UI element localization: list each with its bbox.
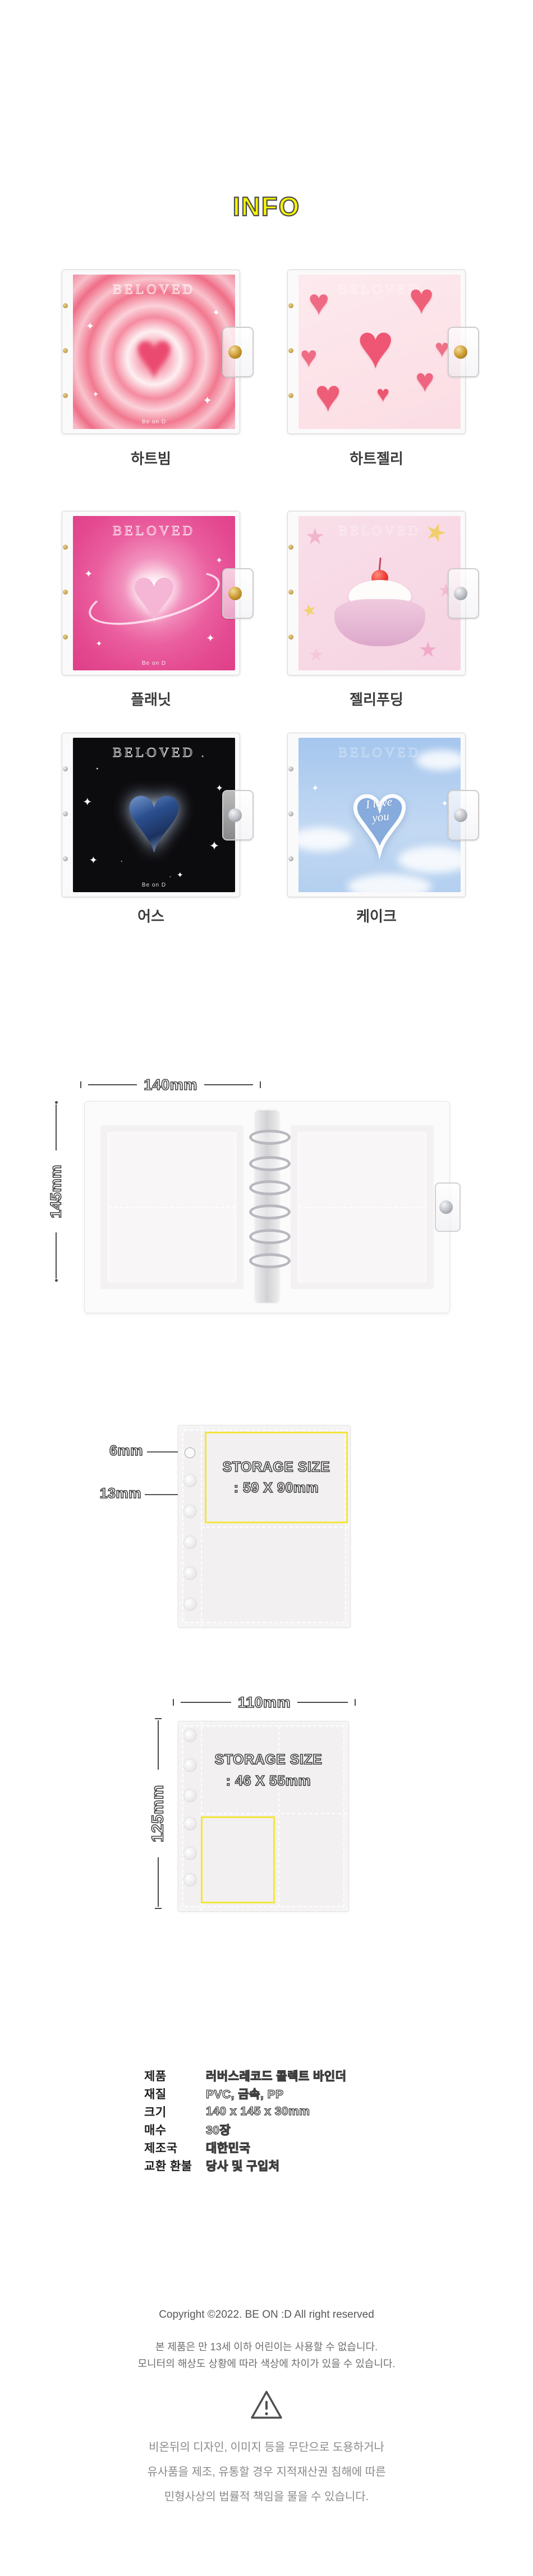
- dimension-line-icon: [204, 1084, 253, 1085]
- spec-row: 제품 러버스레코드 콜렉트 바인더: [144, 2067, 458, 2084]
- cake-message-text: I love you: [365, 795, 394, 826]
- album-label: 케이크: [287, 905, 466, 926]
- sparkle-icon: ✦: [177, 871, 183, 879]
- dimension-tick-icon: [80, 1081, 81, 1088]
- dimension-tick-icon: [173, 1699, 174, 1706]
- rivet-icon: [63, 634, 68, 640]
- rivet-icon: [288, 856, 293, 861]
- heart-icon: ♥: [415, 364, 434, 397]
- binder-right-page: [291, 1125, 434, 1289]
- snap-clasp: [222, 790, 254, 841]
- dimension-line-icon: [158, 1857, 159, 1907]
- snap-clasp: [222, 568, 254, 619]
- pocket2-width-label: 110mm: [238, 1694, 291, 1711]
- spec-label: 크기: [144, 2103, 206, 2120]
- snap-clasp: [448, 568, 479, 619]
- sparkle-icon: ✦: [95, 640, 102, 647]
- snap-dot-icon: [183, 1505, 197, 1518]
- snap-dot-icon: [183, 1789, 197, 1802]
- binder-ring-icon: [249, 1204, 291, 1220]
- rivet-icon: [288, 303, 293, 308]
- binder-ring-icon: [249, 1130, 291, 1145]
- pocket2-height-dimension: 125mm: [149, 1718, 168, 1909]
- snap-dot-icon: [183, 1817, 197, 1830]
- dimension-tick-icon: [260, 1081, 261, 1088]
- dimension-tick-icon: [155, 1908, 162, 1909]
- sparkle-icon: ✦: [215, 784, 223, 793]
- pocket-seam: [201, 1527, 348, 1528]
- snap-button-icon: [439, 1200, 453, 1214]
- binder-ring-icon: [249, 1180, 291, 1195]
- binder-ring-icon: [249, 1253, 291, 1268]
- rivet-icon: [288, 545, 293, 550]
- sparkle-icon: ✦: [86, 321, 94, 331]
- spec-row: 제조국 대한민국: [144, 2139, 458, 2156]
- rivet-icon: [63, 545, 68, 550]
- cover-beloved-text: BELOVED: [73, 746, 235, 761]
- snap-dot-icon: [183, 1597, 197, 1611]
- rivet-icon: [63, 766, 68, 771]
- star-icon: ★: [308, 646, 324, 664]
- rivet-icon: [288, 590, 293, 595]
- punch-hole-icon: [185, 1447, 195, 1458]
- heart-icon: ♥: [435, 336, 449, 361]
- snap-dot-icon: [183, 1474, 197, 1487]
- sparkle-icon: ✦: [82, 797, 92, 808]
- spec-label: 매수: [144, 2121, 206, 2138]
- album-cover-jellypudding: BELOVED ★ ★ ★ ★ ★ ★: [287, 511, 466, 675]
- open-binder-diagram: [84, 1101, 450, 1313]
- sparkle-icon: ✦: [213, 309, 220, 318]
- pocket2-height-label: 125mm: [149, 1785, 168, 1842]
- cover-brand-text: Be on D: [73, 882, 235, 888]
- warning-text: 민형사상의 법률적 책임을 물을 수 있습니다.: [0, 2487, 533, 2504]
- album-cover-heartjelly: BELOVED ♥ ♥ ♥ ♥ ♥ ♥ ♥ ♥: [287, 270, 466, 434]
- cover-beloved-text: BELOVED: [73, 524, 235, 539]
- sparkle-icon: ✦: [206, 633, 215, 644]
- cover-brand-text: Be on D: [73, 419, 235, 425]
- spec-label: 재질: [144, 2085, 206, 2102]
- spec-value: 140 x 145 x 30mm: [206, 2105, 310, 2118]
- cloud-icon: [347, 874, 431, 892]
- callout-line-icon: [147, 1451, 182, 1453]
- rivet-icon: [63, 856, 68, 861]
- dimension-dot-icon: [55, 1101, 58, 1104]
- album-cover-cake: BELOVED ♥ I love you ✦ ✦: [287, 733, 466, 897]
- jelly-skirt-icon: [334, 599, 425, 646]
- rivet-icon: [63, 393, 68, 398]
- rivet-icon: [288, 348, 293, 353]
- cover-beloved-text: BELOVED: [73, 282, 235, 298]
- spec-row: 교환 환불 당사 및 구입처: [144, 2157, 458, 2174]
- star-icon: ★: [300, 601, 319, 621]
- cover-art-planet: BELOVED ♥ ✦ ✦ ✦ ✦ Be on D: [73, 516, 235, 670]
- binder-ring-icon: [249, 1229, 291, 1244]
- warning-triangle-icon: [250, 2390, 283, 2423]
- snap-clasp: [448, 790, 479, 841]
- dimension-tick-icon: [155, 1718, 162, 1719]
- album-label: 젤리푸딩: [287, 688, 466, 709]
- snap-clasp: [435, 1182, 461, 1232]
- dimension-dot-icon: [55, 1279, 58, 1282]
- cover-art-jellypudding: BELOVED ★ ★ ★ ★ ★ ★: [298, 516, 461, 670]
- rivet-icon: [288, 634, 293, 640]
- sparkle-icon: ✦: [89, 855, 98, 865]
- warning-text: 비온뒤의 디자인, 이미지 등을 무단으로 도용하거나: [0, 2438, 533, 2454]
- product-info-page: INFO BELOVED ♥ ✦ ✦ ✦ ✦ Be on D 하트빔 BELOV…: [0, 0, 533, 2576]
- hole-size-label: 6mm: [84, 1443, 143, 1459]
- spec-label: 제조국: [144, 2139, 206, 2156]
- snap-button-icon: [228, 345, 242, 359]
- heart-icon: ♥: [376, 383, 390, 405]
- heart-icon: ♥: [134, 322, 173, 389]
- dimension-tick-icon: [355, 1699, 356, 1706]
- binder-ring-icon: [249, 1156, 291, 1171]
- rivet-icon: [288, 766, 293, 771]
- snap-dot-icon: [183, 1566, 197, 1580]
- spec-value: 대한민국: [206, 2139, 250, 2156]
- sparkle-icon: ✦: [311, 784, 319, 793]
- dimension-line-icon: [158, 1720, 159, 1770]
- binder-left-page: [100, 1125, 243, 1289]
- sparkle-icon: ✦: [93, 390, 99, 398]
- snap-clasp: [448, 327, 479, 377]
- rivet-icon: [63, 590, 68, 595]
- pocket-seam: [298, 1207, 426, 1208]
- cover-art-earth: BELOVED ♥ ✦ ✦ ✦ ✦ ✦ Be on D: [73, 738, 235, 892]
- rivet-icon: [63, 348, 68, 353]
- rivet-icon: [288, 393, 293, 398]
- heart-icon: ♥: [357, 315, 394, 378]
- pocket-seam: [201, 1813, 347, 1814]
- binder-height-dimension: 145mm: [47, 1101, 66, 1282]
- spec-row: 크기 140 x 145 x 30mm: [144, 2103, 458, 2120]
- snap-button-icon: [454, 345, 467, 359]
- snap-button-icon: [228, 587, 242, 600]
- earth-heart-icon: ♥: [125, 767, 184, 867]
- dimension-line-icon: [297, 1702, 348, 1703]
- snap-clasp: [222, 327, 254, 377]
- binder-width-label: 140mm: [144, 1076, 197, 1094]
- spec-row: 재질 PVC, 금속, PP: [144, 2085, 458, 2102]
- sparkle-icon: ✦: [215, 556, 223, 565]
- storage-size-title: STORAGE SIZE: [223, 1459, 330, 1476]
- hole-gap-label: 13mm: [79, 1486, 141, 1502]
- storage-highlight-box: STORAGE SIZE : 59 X 90mm: [205, 1432, 348, 1523]
- star-icon: ★: [422, 518, 451, 548]
- sparkle-icon: ✦: [84, 569, 93, 579]
- binder-width-dimension: 140mm: [80, 1075, 261, 1095]
- pocket2-width-dimension: 110mm: [173, 1692, 356, 1712]
- star-icon: ★: [305, 526, 325, 548]
- snap-dot-icon: [183, 1873, 197, 1887]
- warning-text: 유사품을 제조, 유통할 경우 지적재산권 침해에 따른: [0, 2463, 533, 2479]
- snap-button-icon: [454, 809, 467, 822]
- storage-highlight-box: [201, 1816, 275, 1903]
- dimension-line-icon: [88, 1084, 137, 1085]
- snap-dot-icon: [183, 1729, 197, 1742]
- dimension-line-icon: [181, 1702, 231, 1703]
- dimension-line-icon: [56, 1104, 57, 1150]
- cover-art-heartjelly: BELOVED ♥ ♥ ♥ ♥ ♥ ♥ ♥ ♥: [298, 275, 461, 429]
- heart-icon: ♥: [409, 278, 434, 321]
- cloud-icon: [416, 750, 461, 770]
- cloud-icon: [298, 828, 352, 851]
- page-title: INFO: [0, 191, 533, 222]
- notice-text: 모니터의 해상도 상황에 따라 색상에 차이가 있을 수 있습니다.: [0, 2356, 533, 2371]
- binder-height-label: 145mm: [48, 1164, 65, 1218]
- storage-size-value: : 46 X 55mm: [226, 1773, 311, 1789]
- spec-value: PVC, 금속, PP: [206, 2085, 284, 2102]
- rivet-icon: [288, 811, 293, 816]
- notice-text: 본 제품은 만 13세 이하 어린이는 사용할 수 없습니다.: [0, 2339, 533, 2354]
- album-label: 하트젤리: [287, 447, 466, 468]
- album-label: 하트빔: [62, 447, 240, 468]
- album-cover-heartbeam: BELOVED ♥ ✦ ✦ ✦ ✦ Be on D: [62, 270, 240, 434]
- heart-icon: ♥: [315, 373, 342, 418]
- rivet-icon: [63, 811, 68, 816]
- snap-dot-icon: [183, 1847, 197, 1860]
- cover-art-cake: BELOVED ♥ I love you ✦ ✦: [298, 738, 461, 892]
- spec-value: 러버스레코드 콜렉트 바인더: [206, 2067, 347, 2084]
- album-label: 플래닛: [62, 688, 240, 709]
- cover-brand-text: Be on D: [73, 660, 235, 666]
- snap-button-icon: [454, 587, 467, 600]
- album-label: 어스: [62, 905, 240, 926]
- spec-label: 제품: [144, 2067, 206, 2084]
- storage-size-value: : 59 X 90mm: [234, 1480, 319, 1496]
- storage-size-title: STORAGE SIZE: [215, 1752, 323, 1767]
- spec-value: 당사 및 구입처: [206, 2157, 280, 2174]
- cover-art-heartbeam: BELOVED ♥ ✦ ✦ ✦ ✦ Be on D: [73, 275, 235, 429]
- pudding-illustration: [332, 560, 428, 645]
- spec-label: 교환 환불: [144, 2157, 206, 2174]
- sparkle-icon: ✦: [209, 840, 219, 852]
- spec-value: 30장: [206, 2121, 231, 2138]
- heart-icon: ♥: [308, 284, 329, 320]
- spec-row: 매수 30장: [144, 2121, 458, 2138]
- pocket-seam: [108, 1207, 236, 1208]
- heart-icon: ♥: [300, 342, 318, 372]
- rivet-icon: [63, 303, 68, 308]
- sparkle-icon: ✦: [203, 395, 212, 407]
- snap-dot-icon: [183, 1536, 197, 1549]
- sparkle-icon: ✦: [441, 800, 448, 808]
- dimension-line-icon: [56, 1232, 57, 1278]
- album-cover-planet: BELOVED ♥ ✦ ✦ ✦ ✦ Be on D: [62, 511, 240, 675]
- copyright-text: Copyright ©2022. BE ON :D All right rese…: [0, 2309, 533, 2321]
- album-cover-earth: BELOVED ♥ ✦ ✦ ✦ ✦ ✦ Be on D: [62, 733, 240, 897]
- snap-button-icon: [228, 809, 242, 822]
